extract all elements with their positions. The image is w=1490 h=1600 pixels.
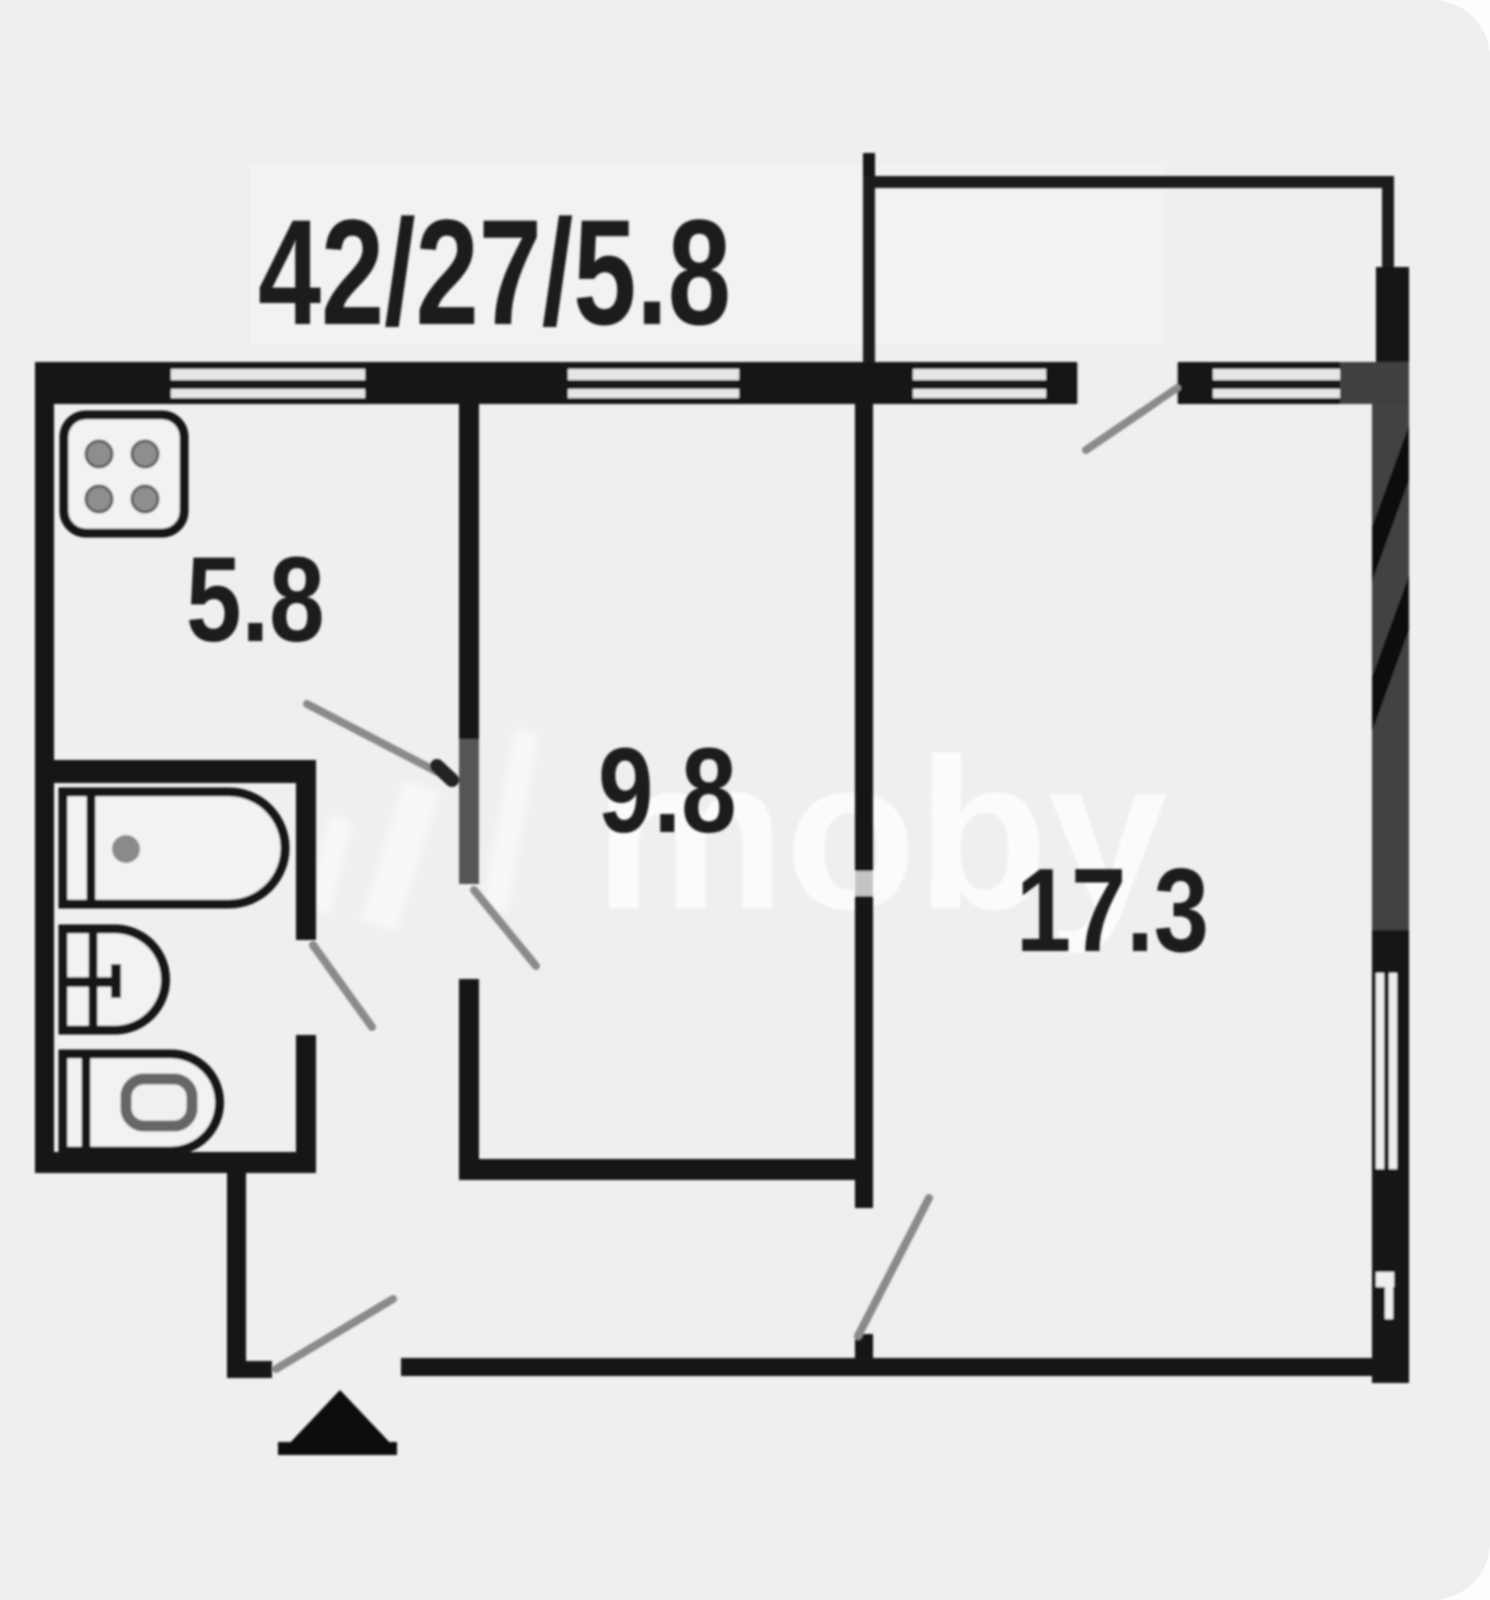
svg-text:9.8: 9.8 xyxy=(598,724,737,858)
svg-text:5.8: 5.8 xyxy=(186,533,325,667)
svg-text:42/27/5.8: 42/27/5.8 xyxy=(258,190,731,357)
svg-text:17.3: 17.3 xyxy=(1016,845,1209,978)
